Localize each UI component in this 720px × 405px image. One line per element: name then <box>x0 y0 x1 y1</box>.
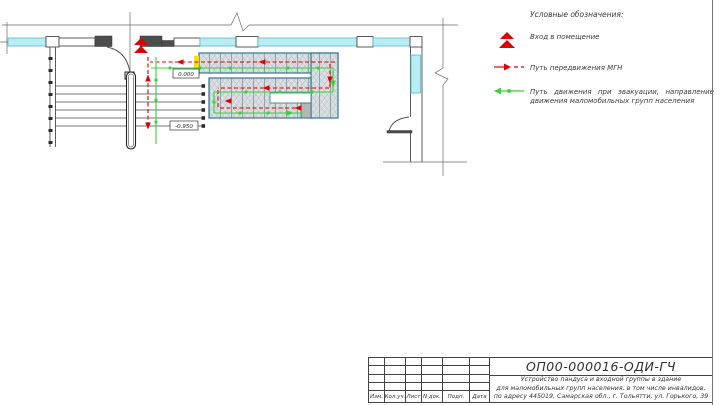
stair-end-posts <box>202 84 206 128</box>
sheet-border-right <box>712 0 713 405</box>
revision-empty-row <box>369 358 489 366</box>
side-door-arc <box>389 117 409 131</box>
evacuation-path-icon <box>494 86 524 96</box>
svg-text:0.000: 0.000 <box>178 72 194 78</box>
legend-item-mgn-path: Путь передвижения МГН <box>494 62 714 73</box>
col-list: Лист <box>406 391 422 402</box>
legend-label: Вход в помещение <box>530 31 714 42</box>
revision-header-row: Изм. Кол.уч. Лист N док. Подп. Дата <box>369 391 489 402</box>
description-line: Устройство пандуса и входной группы в зд… <box>490 376 712 385</box>
door-jamb <box>95 36 112 47</box>
elevation-label-lower: -0.950 <box>170 121 198 130</box>
corner-pier <box>410 37 422 48</box>
col-izm: Изм. <box>369 391 385 402</box>
window-band-vertical <box>411 55 421 93</box>
legend-item-evac-path: Путь движения при эвакуации, направление… <box>494 86 714 106</box>
break-symbol-top <box>231 13 249 31</box>
side-door-leaf <box>387 131 412 134</box>
wall-pier <box>46 37 59 48</box>
legend-label: Путь движения при эвакуации, направление… <box>530 86 714 106</box>
project-description: Устройство пандуса и входной группы в зд… <box>490 376 712 402</box>
window-band <box>373 38 410 46</box>
col-koluch: Кол.уч. <box>385 391 406 402</box>
elevation-label-zero: 0.000 <box>173 69 199 78</box>
window-band <box>8 38 46 46</box>
ramp-end-platform <box>301 103 311 118</box>
drawing-sheet: 0.000 -0.950 Условные обозначения: Вход … <box>0 0 720 405</box>
revision-table: Изм. Кол.уч. Лист N док. Подп. Дата <box>368 357 490 403</box>
floor-plan-drawing: 0.000 -0.950 <box>0 0 470 192</box>
legend: Условные обозначения: Вход в помещение П… <box>494 10 714 119</box>
window-band <box>258 38 357 46</box>
revision-empty-row <box>369 375 489 383</box>
wall-pier <box>357 37 373 48</box>
document-code: ОП00-000016-ОДИ-ГЧ <box>490 358 712 376</box>
legend-title: Условные обозначения: <box>530 10 714 19</box>
left-wall <box>49 47 56 147</box>
title-block-main: ОП00-000016-ОДИ-ГЧ Устройство пандуса и … <box>490 357 713 403</box>
col-data: Дата <box>470 391 489 402</box>
title-block: Изм. Кол.уч. Лист N док. Подп. Дата ОП00… <box>368 357 713 403</box>
description-line: для маломобильных групп населения, в том… <box>490 385 712 394</box>
col-podp: Подп. <box>443 391 470 402</box>
break-symbol-right <box>435 68 448 85</box>
revision-empty-row <box>369 383 489 391</box>
window-band <box>200 38 236 46</box>
staircase <box>56 72 205 149</box>
ramp-slot <box>270 93 311 103</box>
wall-pier <box>236 37 258 48</box>
legend-label: Путь передвижения МГН <box>530 62 714 73</box>
entrance-door-arc <box>107 47 130 73</box>
description-line: по адресу 445019, Самарская обл., г. Тол… <box>490 393 712 402</box>
svg-text:-0.950: -0.950 <box>175 124 193 130</box>
right-wall <box>387 47 422 162</box>
ramp-landing-right <box>311 53 338 118</box>
mgn-path-icon <box>494 62 524 72</box>
entrance-arrow-icon <box>494 31 524 49</box>
legend-item-entrance: Вход в помещение <box>494 31 714 49</box>
col-ndok: N док. <box>422 391 443 402</box>
stair-handrail <box>127 72 136 149</box>
revision-empty-row <box>369 366 489 374</box>
